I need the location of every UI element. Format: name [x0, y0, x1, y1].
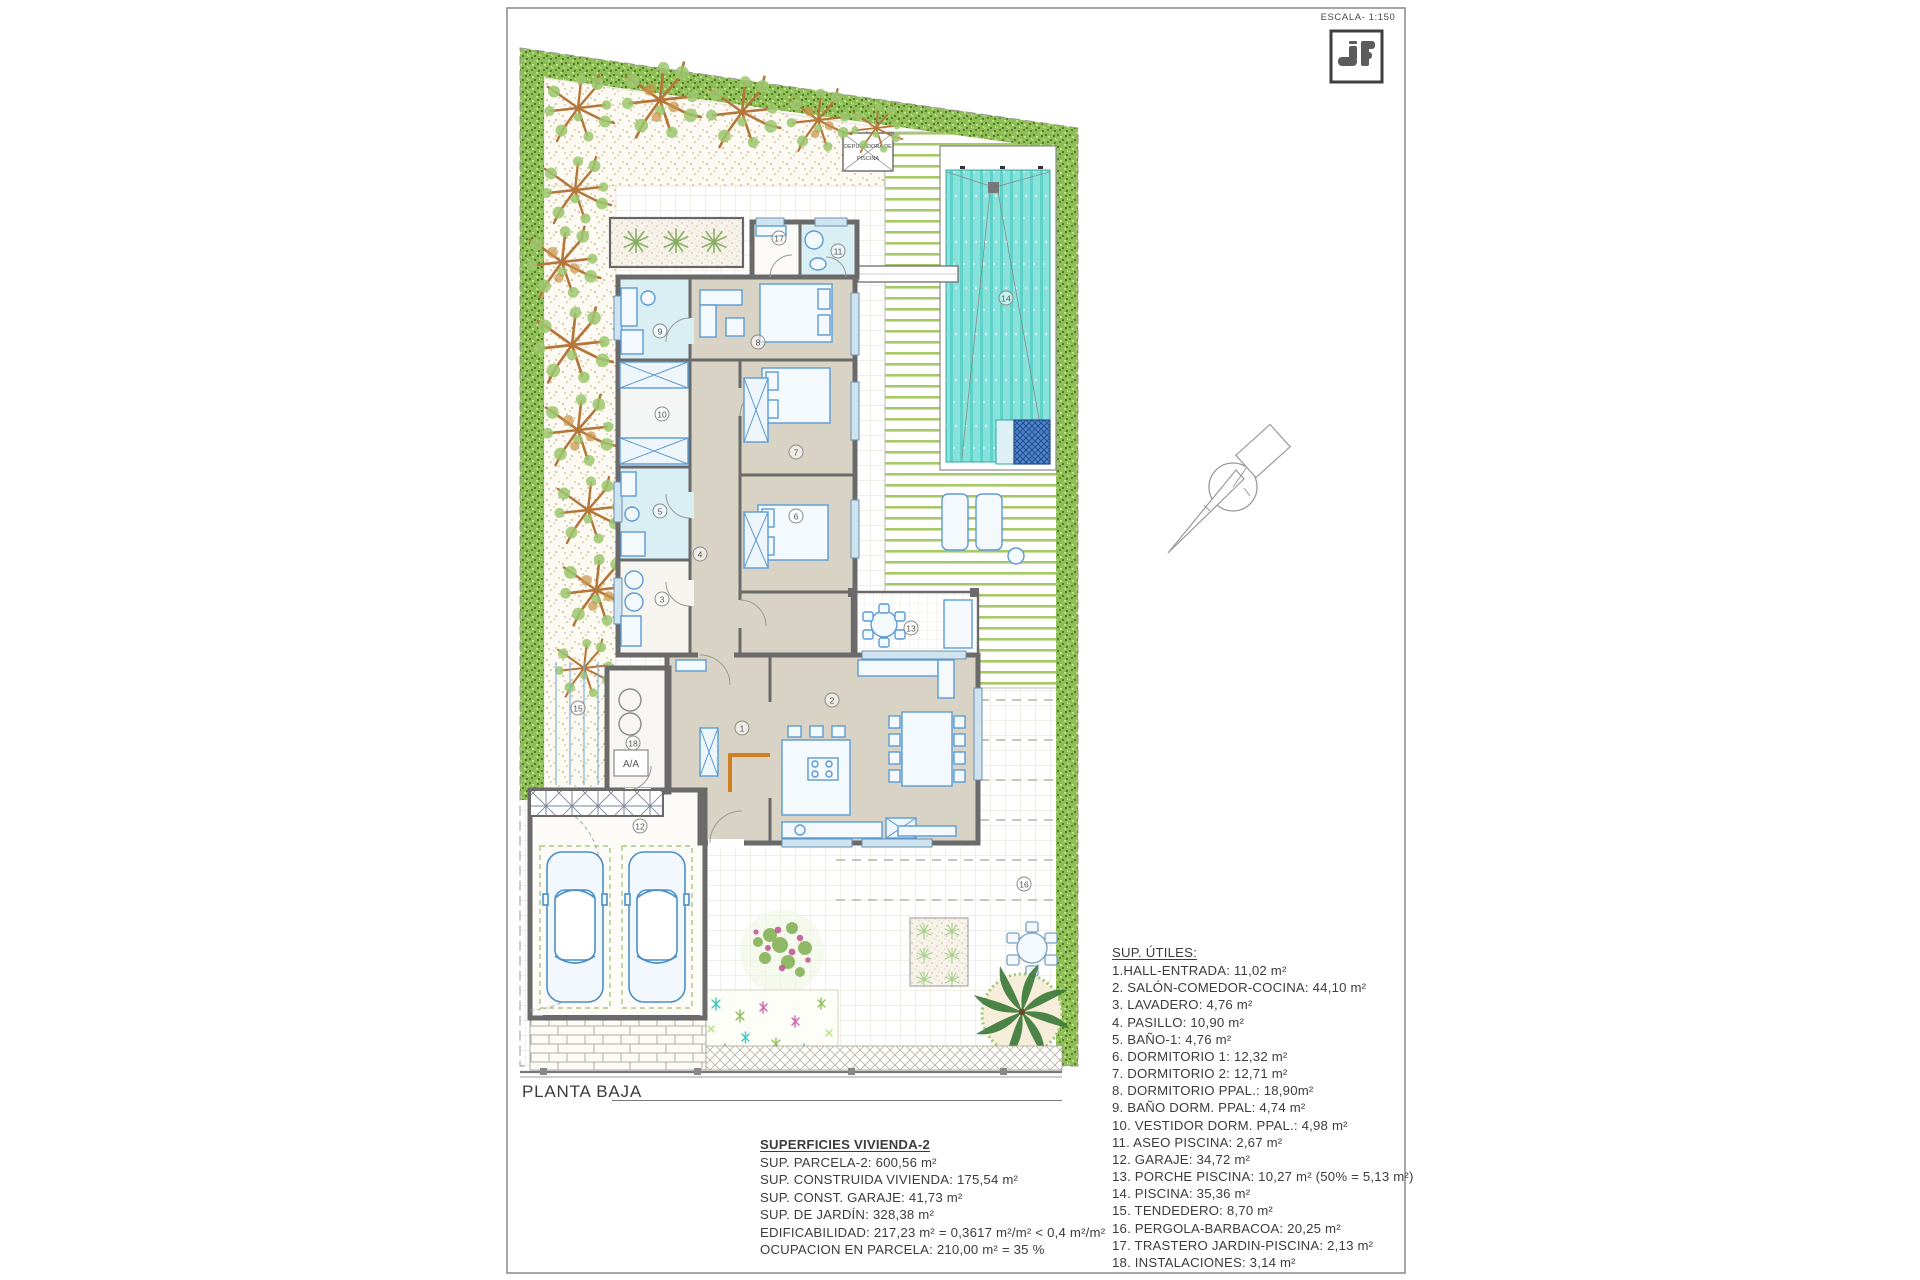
- site-plan-drawing: DEPURADORA DE PISCINA: [0, 0, 1920, 1280]
- text-line: OCUPACION EN PARCELA: 210,00 m² = 35 %: [760, 1241, 1120, 1259]
- ac-unit: A/A: [614, 750, 648, 776]
- pool-water: [946, 170, 1050, 462]
- flowering-shrub: [740, 910, 824, 994]
- text-line: 12. GARAJE: 34,72 m²: [1112, 1151, 1408, 1168]
- plan-title: PLANTA BAJA: [522, 1082, 642, 1102]
- pool-spa: [1014, 420, 1050, 464]
- pool-steps: [996, 420, 1014, 464]
- text-line: EDIFICABILIDAD: 217,23 m² = 0,3617 m²/m²…: [760, 1224, 1120, 1242]
- surfaces-summary: SUPERFICIES VIVIENDA-2 SUP. PARCELA-2: 6…: [760, 1136, 1120, 1259]
- text-line: 17. TRASTERO JARDIN-PISCINA: 2,13 m²: [1112, 1237, 1408, 1254]
- text-line: 4. PASILLO: 10,90 m²: [1112, 1014, 1408, 1031]
- text-line: SUP. CONST. GARAJE: 41,73 m²: [760, 1189, 1120, 1207]
- hedge-right: [1056, 128, 1078, 1066]
- car: [625, 852, 689, 1002]
- text-line: 8. DORMITORIO PPAL.: 18,90m²: [1112, 1082, 1408, 1099]
- room-aseo-piscina: [800, 222, 857, 277]
- text-line: SUP. DE JARDÍN: 328,38 m²: [760, 1206, 1120, 1224]
- hedge-left: [520, 60, 544, 800]
- areas-legend: SUP. ÚTILES: 1.HALL-ENTRADA: 11,02 m²2. …: [1112, 944, 1408, 1271]
- text-line: 9. BAÑO DORM. PPAL: 4,74 m²: [1112, 1099, 1408, 1116]
- jf-logo: [1331, 31, 1382, 82]
- text-line: 6. DORMITORIO 1: 12,32 m²: [1112, 1048, 1408, 1065]
- car: [543, 852, 607, 1002]
- text-line: SUP. CONSTRUIDA VIVIENDA: 175,54 m²: [760, 1171, 1120, 1189]
- text-line: 11. ASEO PISCINA: 2,67 m²: [1112, 1134, 1408, 1151]
- driveway-bricks: [530, 1018, 706, 1070]
- floor-plan-sheet: DEPURADORA DE PISCINA: [0, 0, 1920, 1280]
- text-line: 2. SALÓN-COMEDOR-COCINA: 44,10 m²: [1112, 979, 1408, 996]
- pool-skimmer: [988, 182, 999, 193]
- pool-purifier-label-2: PISCINA: [857, 156, 879, 162]
- areas-legend-items: 1.HALL-ENTRADA: 11,02 m²2. SALÓN-COMEDOR…: [1112, 962, 1408, 1271]
- scale-label: ESCALA- 1:150: [1308, 12, 1408, 23]
- text-line: 13. PORCHE PISCINA: 10,27 m² (50% = 5,13…: [1112, 1168, 1408, 1185]
- text-line: 3. LAVADERO: 4,76 m²: [1112, 996, 1408, 1013]
- text-line: 10. VESTIDOR DORM. PPAL.: 4,98 m²: [1112, 1117, 1408, 1134]
- text-line: 14. PISCINA: 35,36 m²: [1112, 1185, 1408, 1202]
- text-line: 18. INSTALACIONES: 3,14 m²: [1112, 1254, 1408, 1271]
- ac-unit-label: A/A: [623, 759, 639, 770]
- planter-box: [910, 918, 968, 986]
- text-line: 1.HALL-ENTRADA: 11,02 m²: [1112, 962, 1408, 979]
- text-line: SUP. PARCELA-2: 600,56 m²: [760, 1154, 1120, 1172]
- text-line: 16. PERGOLA-BARBACOA: 20,25 m²: [1112, 1220, 1408, 1237]
- pool: [940, 146, 1056, 470]
- surfaces-summary-lines: SUP. PARCELA-2: 600,56 m²SUP. CONSTRUIDA…: [760, 1154, 1120, 1259]
- surfaces-summary-title: SUPERFICIES VIVIENDA-2: [760, 1136, 1120, 1154]
- text-line: 5. BAÑO-1: 4,76 m²: [1112, 1031, 1408, 1048]
- plan-title-underline: [612, 1100, 1062, 1101]
- garage-pergola-strip: [530, 790, 663, 816]
- areas-legend-title: SUP. ÚTILES:: [1112, 944, 1408, 961]
- text-line: 15. TENDEDERO: 8,70 m²: [1112, 1202, 1408, 1219]
- sidewalk-hatch: [706, 1046, 1062, 1070]
- text-line: 7. DORMITORIO 2: 12,71 m²: [1112, 1065, 1408, 1082]
